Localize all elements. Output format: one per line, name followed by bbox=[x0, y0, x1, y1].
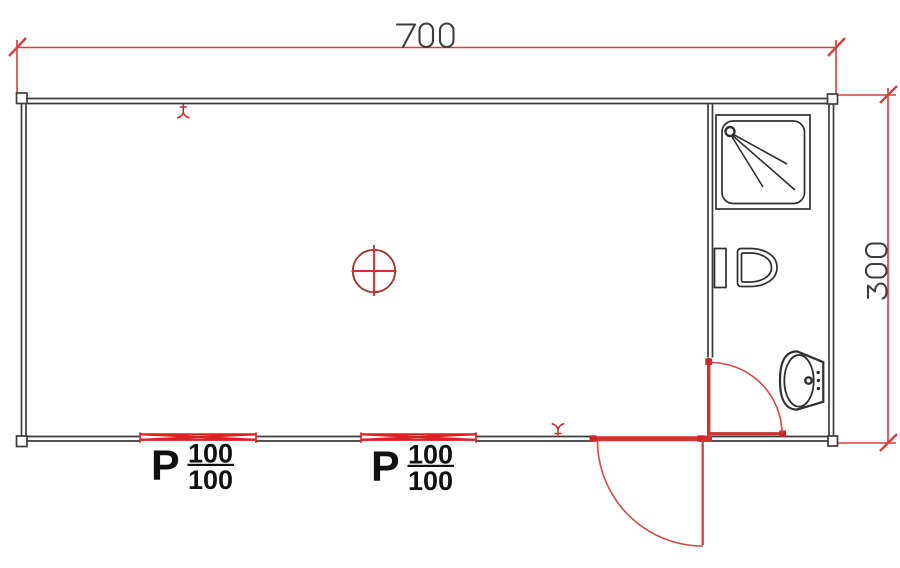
svg-text:P: P bbox=[371, 443, 400, 491]
svg-text:100: 100 bbox=[188, 465, 233, 495]
svg-text:P: P bbox=[151, 442, 180, 490]
svg-text:100: 100 bbox=[408, 466, 453, 496]
